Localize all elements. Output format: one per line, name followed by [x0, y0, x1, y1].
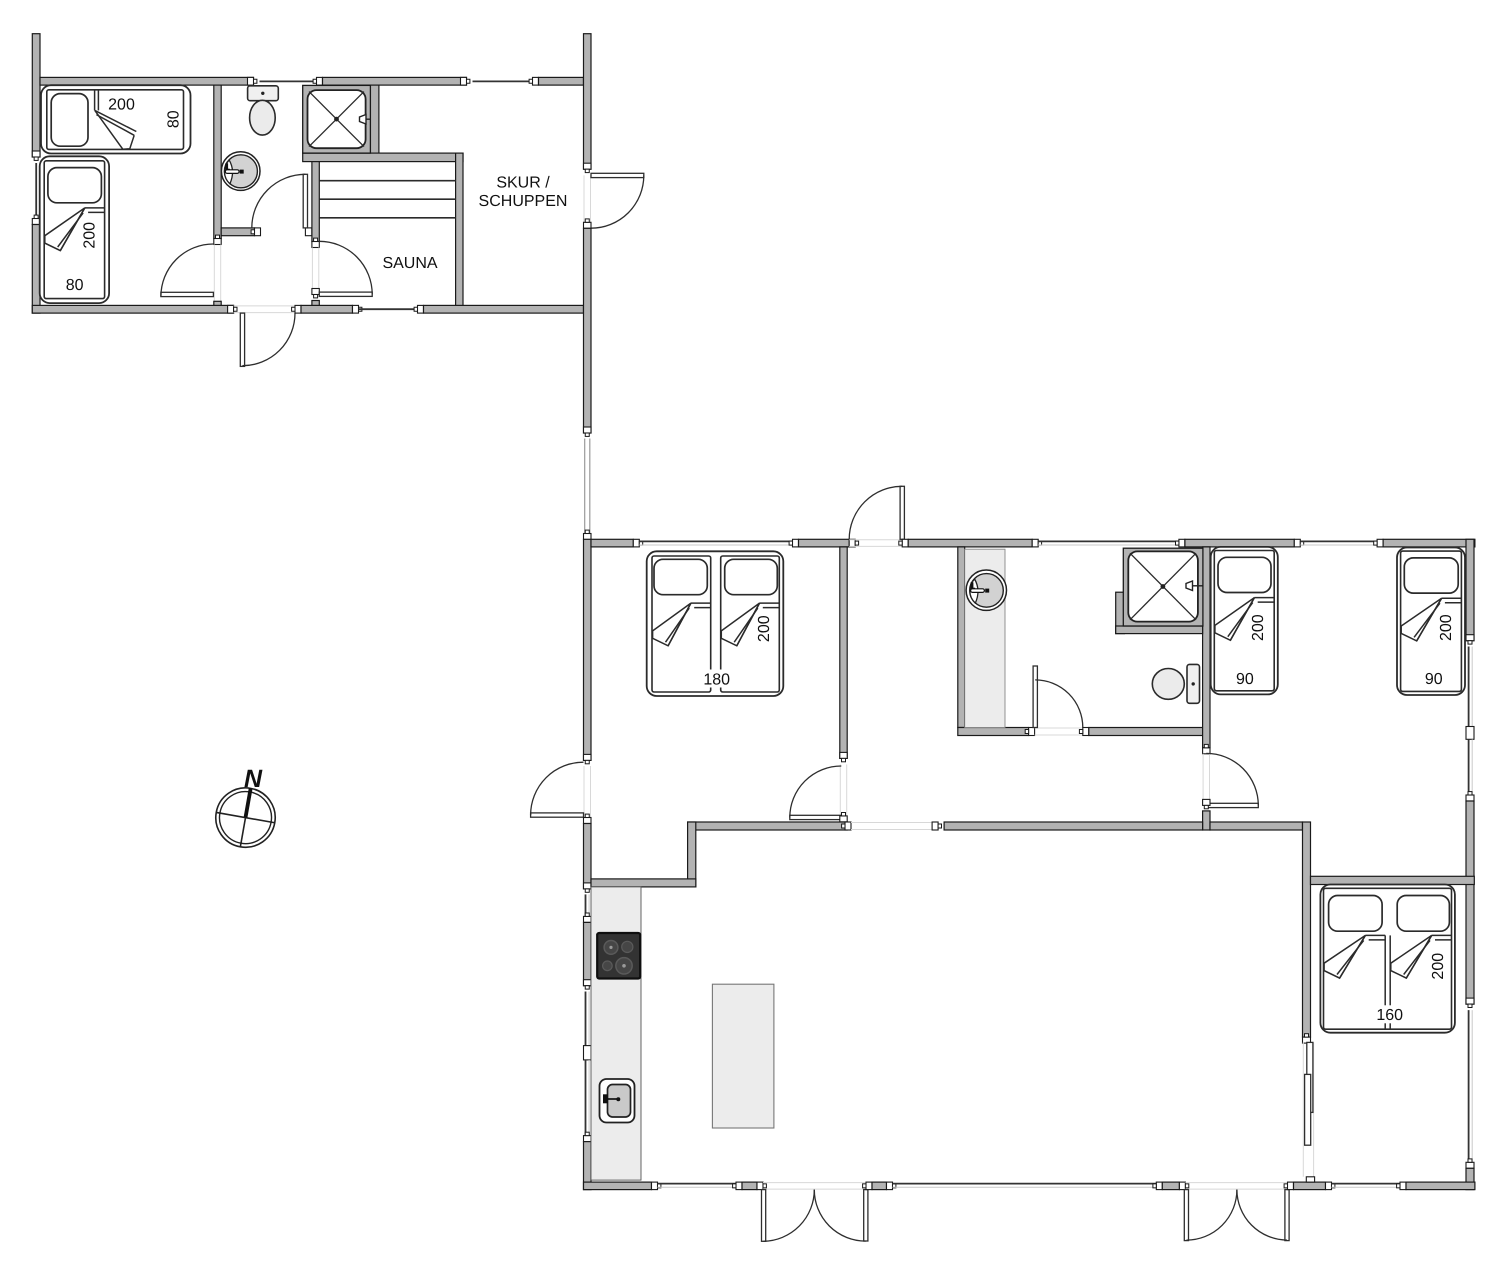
svg-text:200: 200	[1250, 614, 1267, 641]
svg-text:200: 200	[1438, 614, 1455, 641]
svg-text:80: 80	[66, 277, 84, 294]
svg-text:200: 200	[82, 222, 99, 249]
svg-text:200: 200	[1430, 953, 1447, 980]
svg-text:80: 80	[165, 110, 182, 128]
svg-text:SKUR /: SKUR /	[496, 175, 550, 192]
svg-text:90: 90	[1425, 671, 1443, 688]
svg-text:180: 180	[703, 671, 730, 688]
svg-text:160: 160	[1376, 1007, 1403, 1024]
svg-text:SAUNA: SAUNA	[382, 255, 437, 272]
svg-text:200: 200	[108, 96, 135, 113]
svg-text:SCHUPPEN: SCHUPPEN	[479, 193, 568, 210]
svg-text:90: 90	[1236, 671, 1254, 688]
svg-text:N: N	[244, 765, 263, 793]
svg-text:200: 200	[756, 615, 773, 642]
